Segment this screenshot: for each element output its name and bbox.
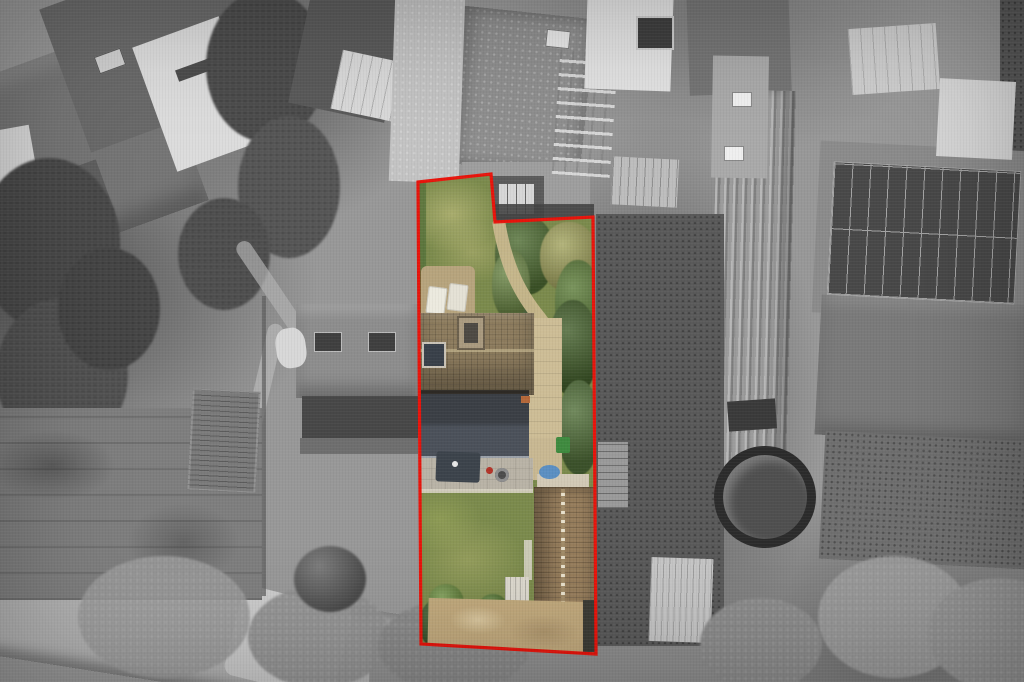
boundary-svg — [0, 0, 1024, 682]
plot-boundary — [418, 174, 596, 654]
aerial-photo — [0, 0, 1024, 682]
